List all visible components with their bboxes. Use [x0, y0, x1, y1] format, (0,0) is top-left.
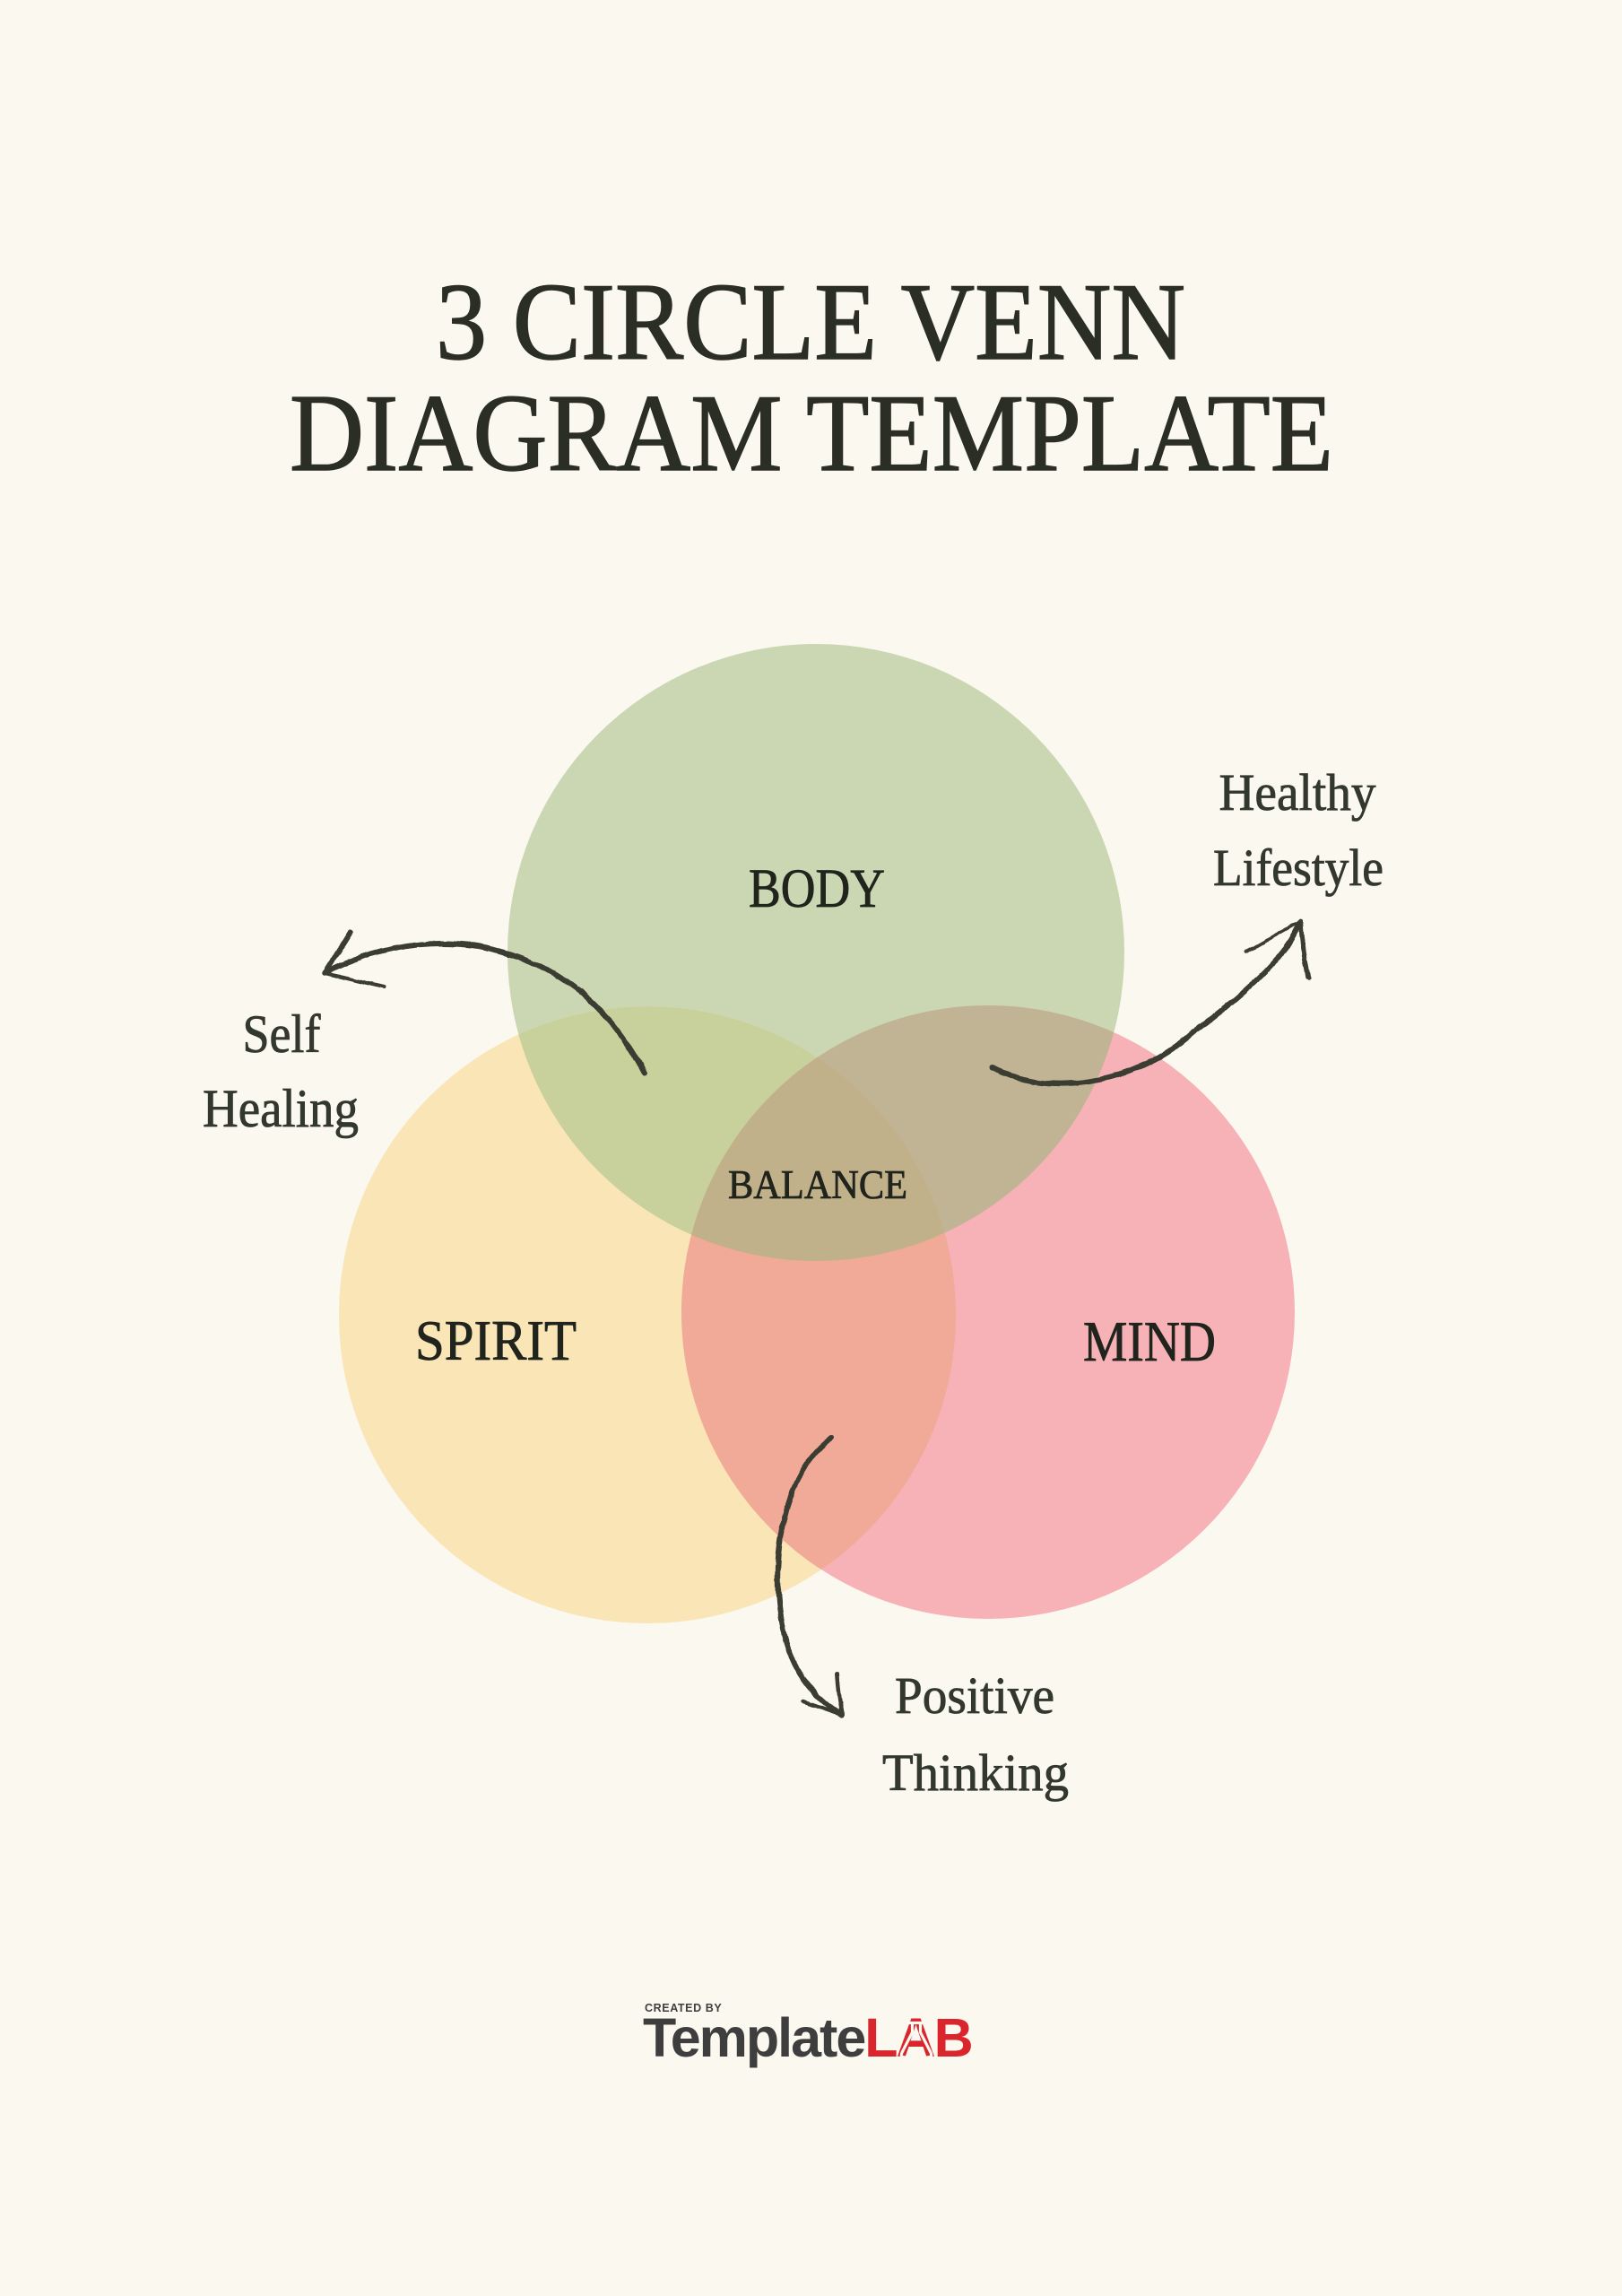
svg-text:Positive: Positive: [895, 1666, 1054, 1725]
svg-text:3 CIRCLE VENN: 3 CIRCLE VENN: [436, 260, 1185, 383]
svg-text:Lifestyle: Lifestyle: [1213, 839, 1383, 897]
svg-text:Self: Self: [243, 1004, 321, 1064]
svg-text:Healthy: Healthy: [1219, 763, 1376, 822]
svg-text:SPIRIT: SPIRIT: [415, 1309, 577, 1372]
svg-text:BALANCE: BALANCE: [728, 1162, 907, 1207]
svg-text:BODY: BODY: [749, 859, 885, 919]
svg-text:Thinking: Thinking: [882, 1744, 1069, 1802]
svg-text:MIND: MIND: [1083, 1309, 1216, 1373]
svg-text:Healing: Healing: [203, 1079, 359, 1138]
svg-text:DIAGRAM TEMPLATE: DIAGRAM TEMPLATE: [290, 371, 1333, 494]
